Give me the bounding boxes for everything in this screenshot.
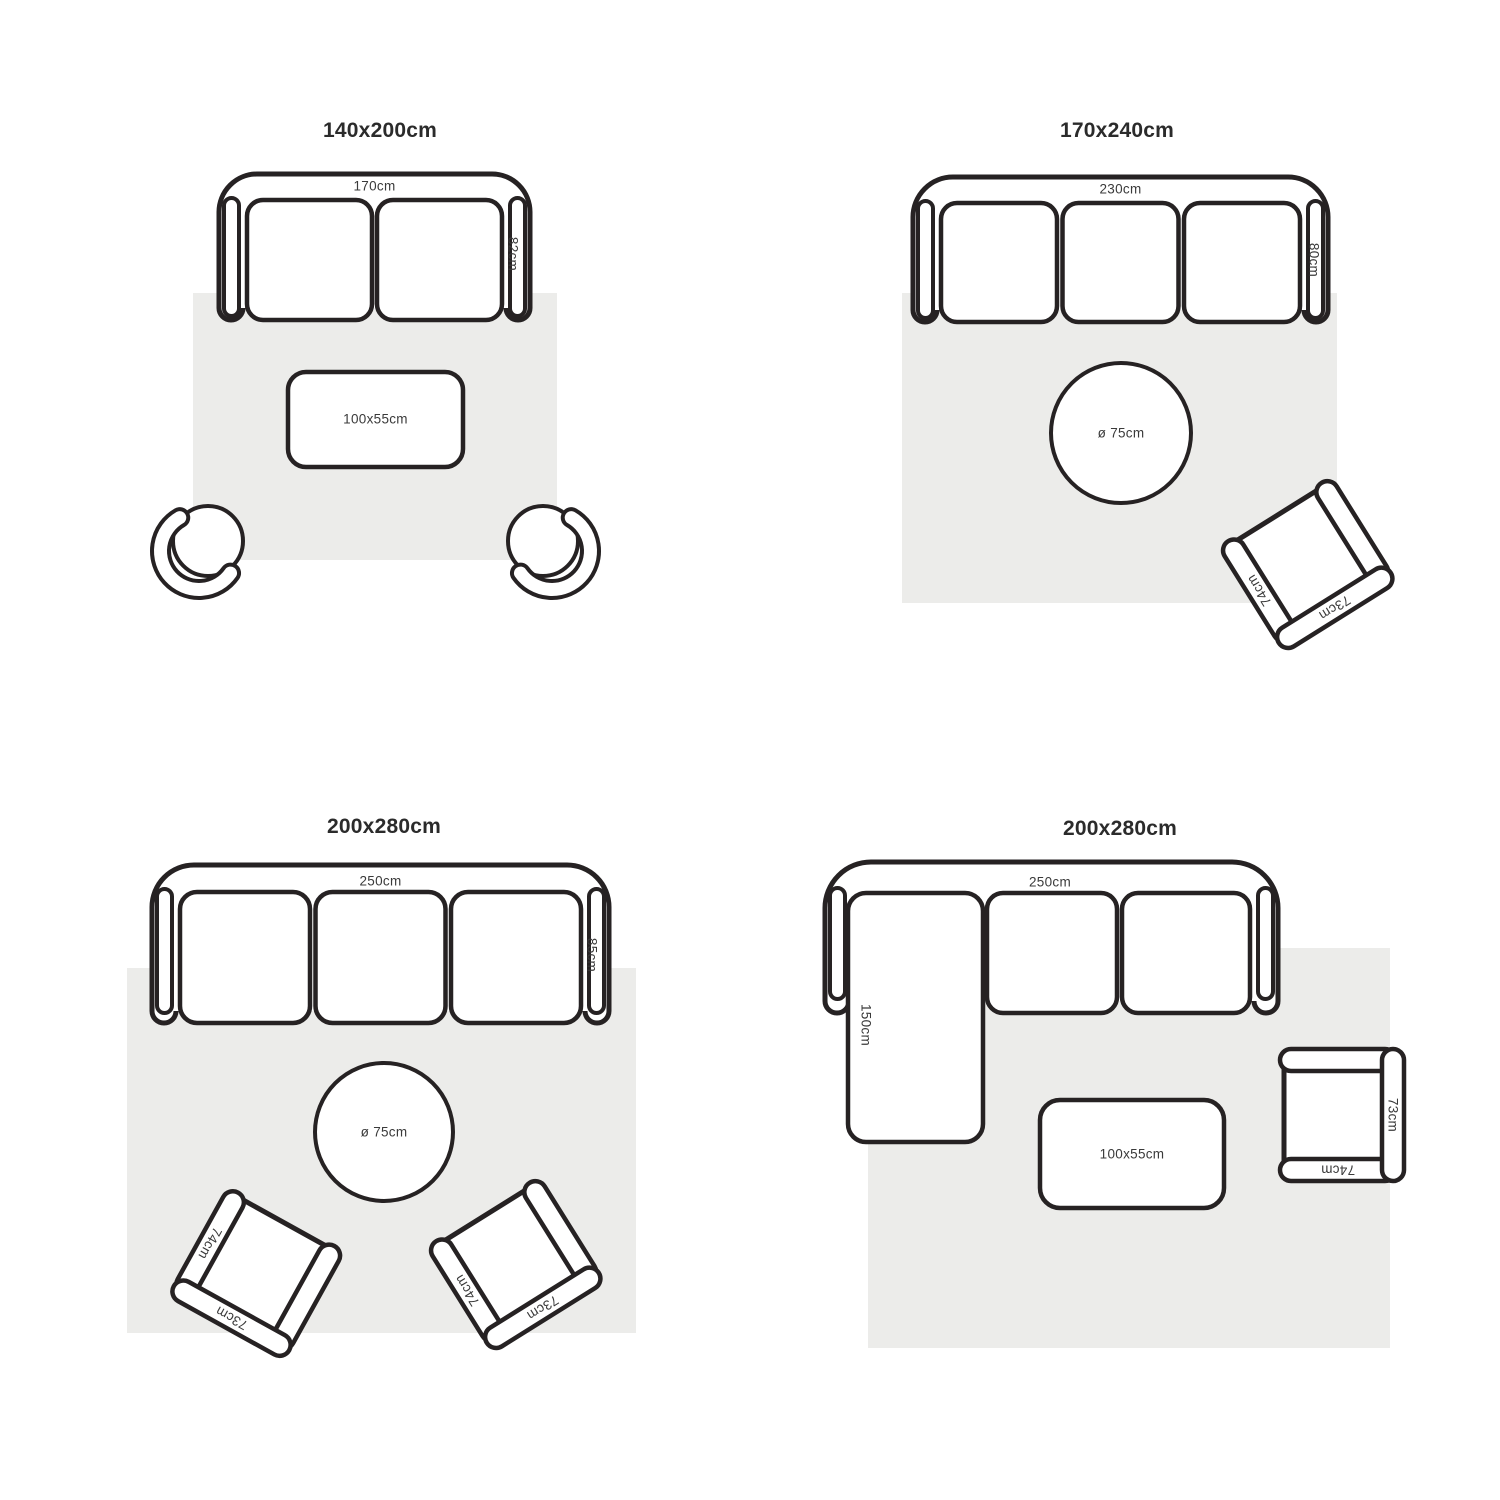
- round-table: ø 75cm: [1051, 363, 1191, 503]
- quadrant-title-170x240: 170x240cm: [1060, 119, 1174, 143]
- sofa-arm-left: [830, 888, 845, 999]
- quadrant-200x280-b: 250cm 150cm 100x55cm 73cm 74cm: [825, 862, 1404, 1348]
- sofa-2-seat: 170cm 82cm: [219, 174, 530, 320]
- sofa-width-label: 230cm: [1099, 182, 1141, 197]
- quadrant-title-200x280-b: 200x280cm: [1063, 817, 1177, 841]
- sofa-arm-left: [918, 201, 933, 318]
- armchair: 73cm 74cm: [1280, 1049, 1404, 1181]
- sofa-cushion: [377, 200, 502, 320]
- sofa-arm-left: [224, 198, 239, 316]
- round-table-size-label: ø 75cm: [361, 1125, 408, 1140]
- sofa-cushion: [1184, 203, 1300, 322]
- sofa-3-seat: 250cm 85cm: [152, 865, 609, 1023]
- sofa-cushion: [316, 892, 446, 1023]
- sofa-depth-label: 80cm: [1307, 243, 1322, 277]
- armchair-arm-top: [1280, 1049, 1396, 1071]
- sofa-3-seat: 230cm 80cm: [913, 177, 1328, 322]
- sofa-depth-label: 82cm: [506, 237, 521, 271]
- layout-diagram: 170cm 82cm 100x55cm: [0, 0, 1500, 1500]
- quadrant-title-200x280-a: 200x280cm: [327, 815, 441, 839]
- sofa-arm-left: [157, 889, 172, 1013]
- quadrant-200x280-a: 250cm 85cm ø 75cm 73cm 74cm 73cm: [127, 865, 636, 1360]
- sofa-cushion: [1063, 203, 1179, 322]
- pouf-chair-left: [160, 506, 243, 590]
- coffee-table: 100x55cm: [1040, 1100, 1224, 1208]
- sofa-cushion: [1122, 893, 1250, 1013]
- quadrant-title-140x200: 140x200cm: [323, 119, 437, 143]
- round-table: ø 75cm: [315, 1063, 453, 1201]
- quadrant-140x200: 170cm 82cm 100x55cm: [160, 174, 590, 590]
- sofa-depth-label: 85cm: [585, 938, 600, 972]
- coffee-table: 100x55cm: [288, 372, 463, 467]
- rug-size-guide: 170cm 82cm 100x55cm: [0, 0, 1500, 1500]
- coffee-table-size-label: 100x55cm: [343, 412, 408, 427]
- armchair-depth-label: 73cm: [1386, 1098, 1401, 1132]
- sofa-width-label: 250cm: [359, 874, 401, 889]
- armchair-width-label: 74cm: [1321, 1163, 1355, 1178]
- sofa-cushion: [180, 892, 310, 1023]
- sofa-width-label: 170cm: [353, 179, 395, 194]
- sofa-cushion: [941, 203, 1057, 322]
- quadrant-170x240: 230cm 80cm ø 75cm 73cm 74cm: [902, 177, 1397, 652]
- sofa-cushion: [987, 893, 1117, 1013]
- sofa-chaise-label: 150cm: [859, 1004, 874, 1046]
- sofa-cushion: [247, 200, 372, 320]
- round-table-size-label: ø 75cm: [1098, 426, 1145, 441]
- pouf-chair-right: [508, 506, 591, 590]
- sofa-width-label: 250cm: [1029, 875, 1071, 890]
- sofa-cushion: [451, 892, 581, 1023]
- coffee-table-size-label: 100x55cm: [1100, 1147, 1165, 1162]
- sofa-arm-right: [1258, 888, 1273, 999]
